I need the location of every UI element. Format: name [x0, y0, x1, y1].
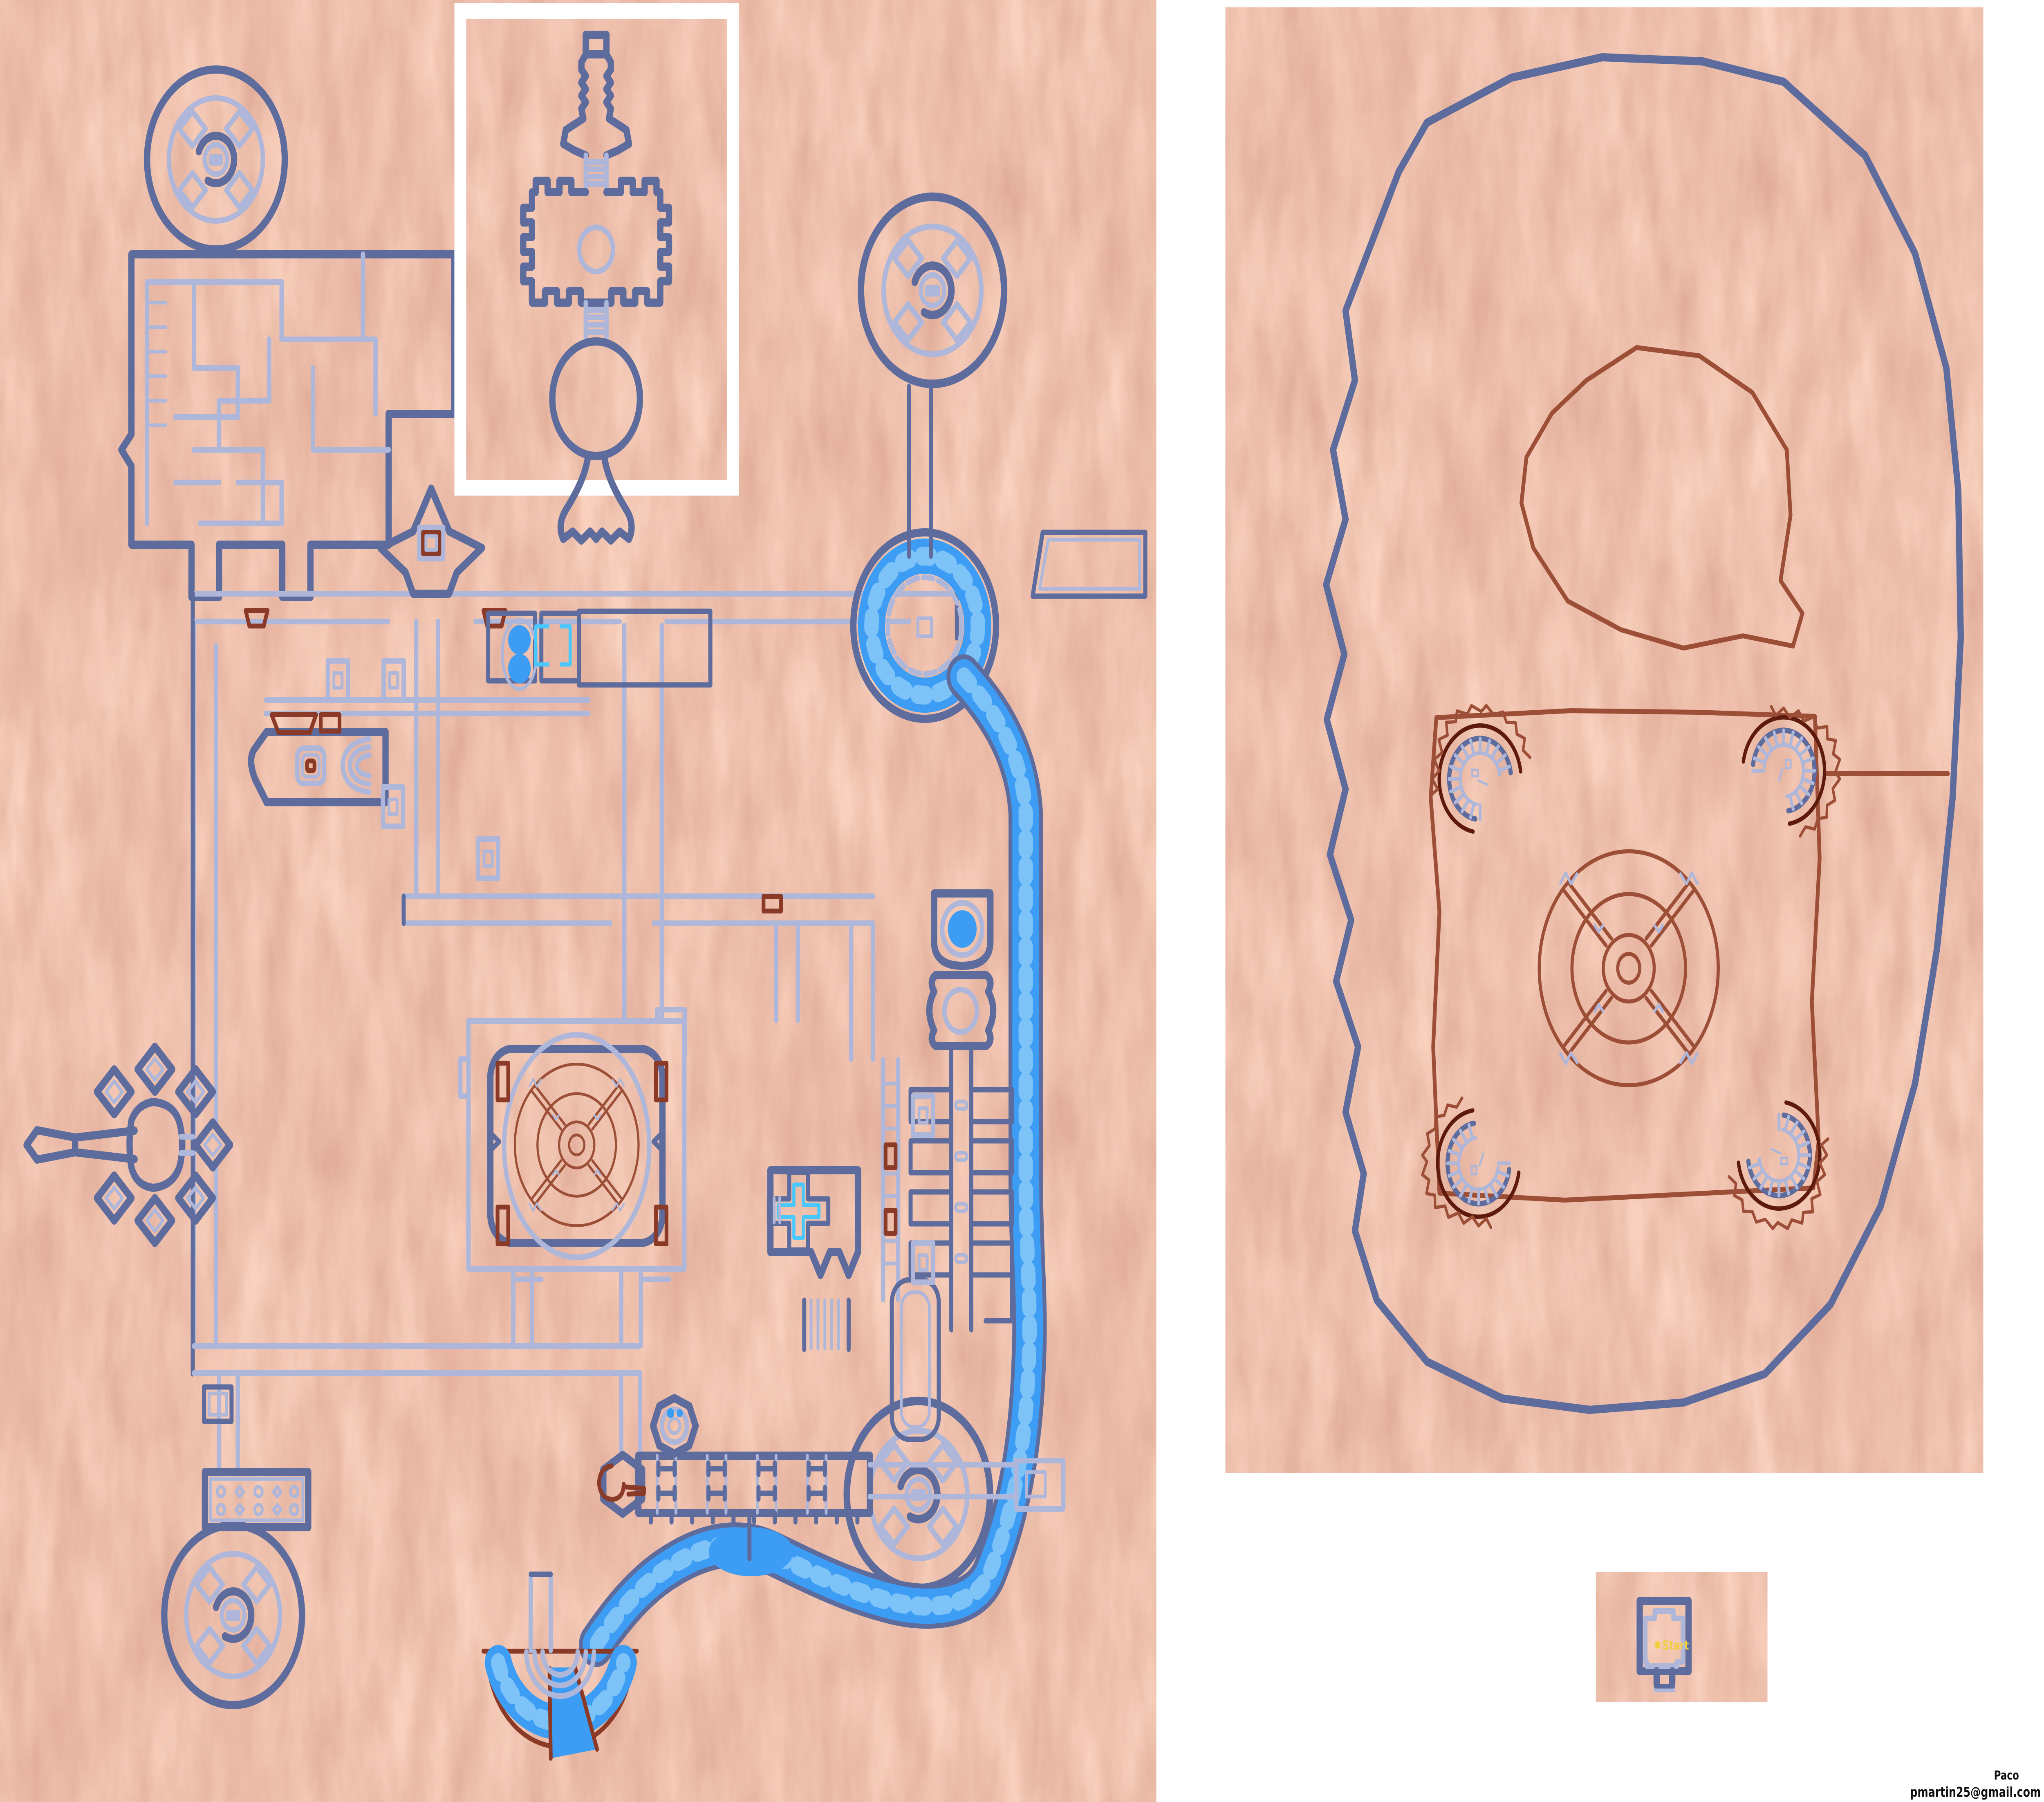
tower-northwest — [147, 70, 285, 249]
tower-southwest — [164, 1525, 302, 1705]
start-label: Start — [1662, 1638, 1689, 1653]
maps-canvas: Start Paco pmartin25@gmail.com — [0, 0, 2044, 1802]
start-marker-dot — [1655, 1641, 1661, 1649]
credit-email: pmartin25@gmail.com — [1910, 1784, 2041, 1800]
inset-panel — [454, 3, 739, 541]
credit-block: Paco pmartin25@gmail.com — [1910, 1768, 2041, 1800]
region-map-panel — [1226, 7, 1983, 1473]
screenshot-stage: Start Paco pmartin25@gmail.com — [0, 0, 2044, 1802]
credit-author: Paco — [1994, 1768, 2019, 1783]
start-room-panel: Start — [1596, 1572, 1767, 1702]
tower-northeast — [861, 197, 1004, 384]
